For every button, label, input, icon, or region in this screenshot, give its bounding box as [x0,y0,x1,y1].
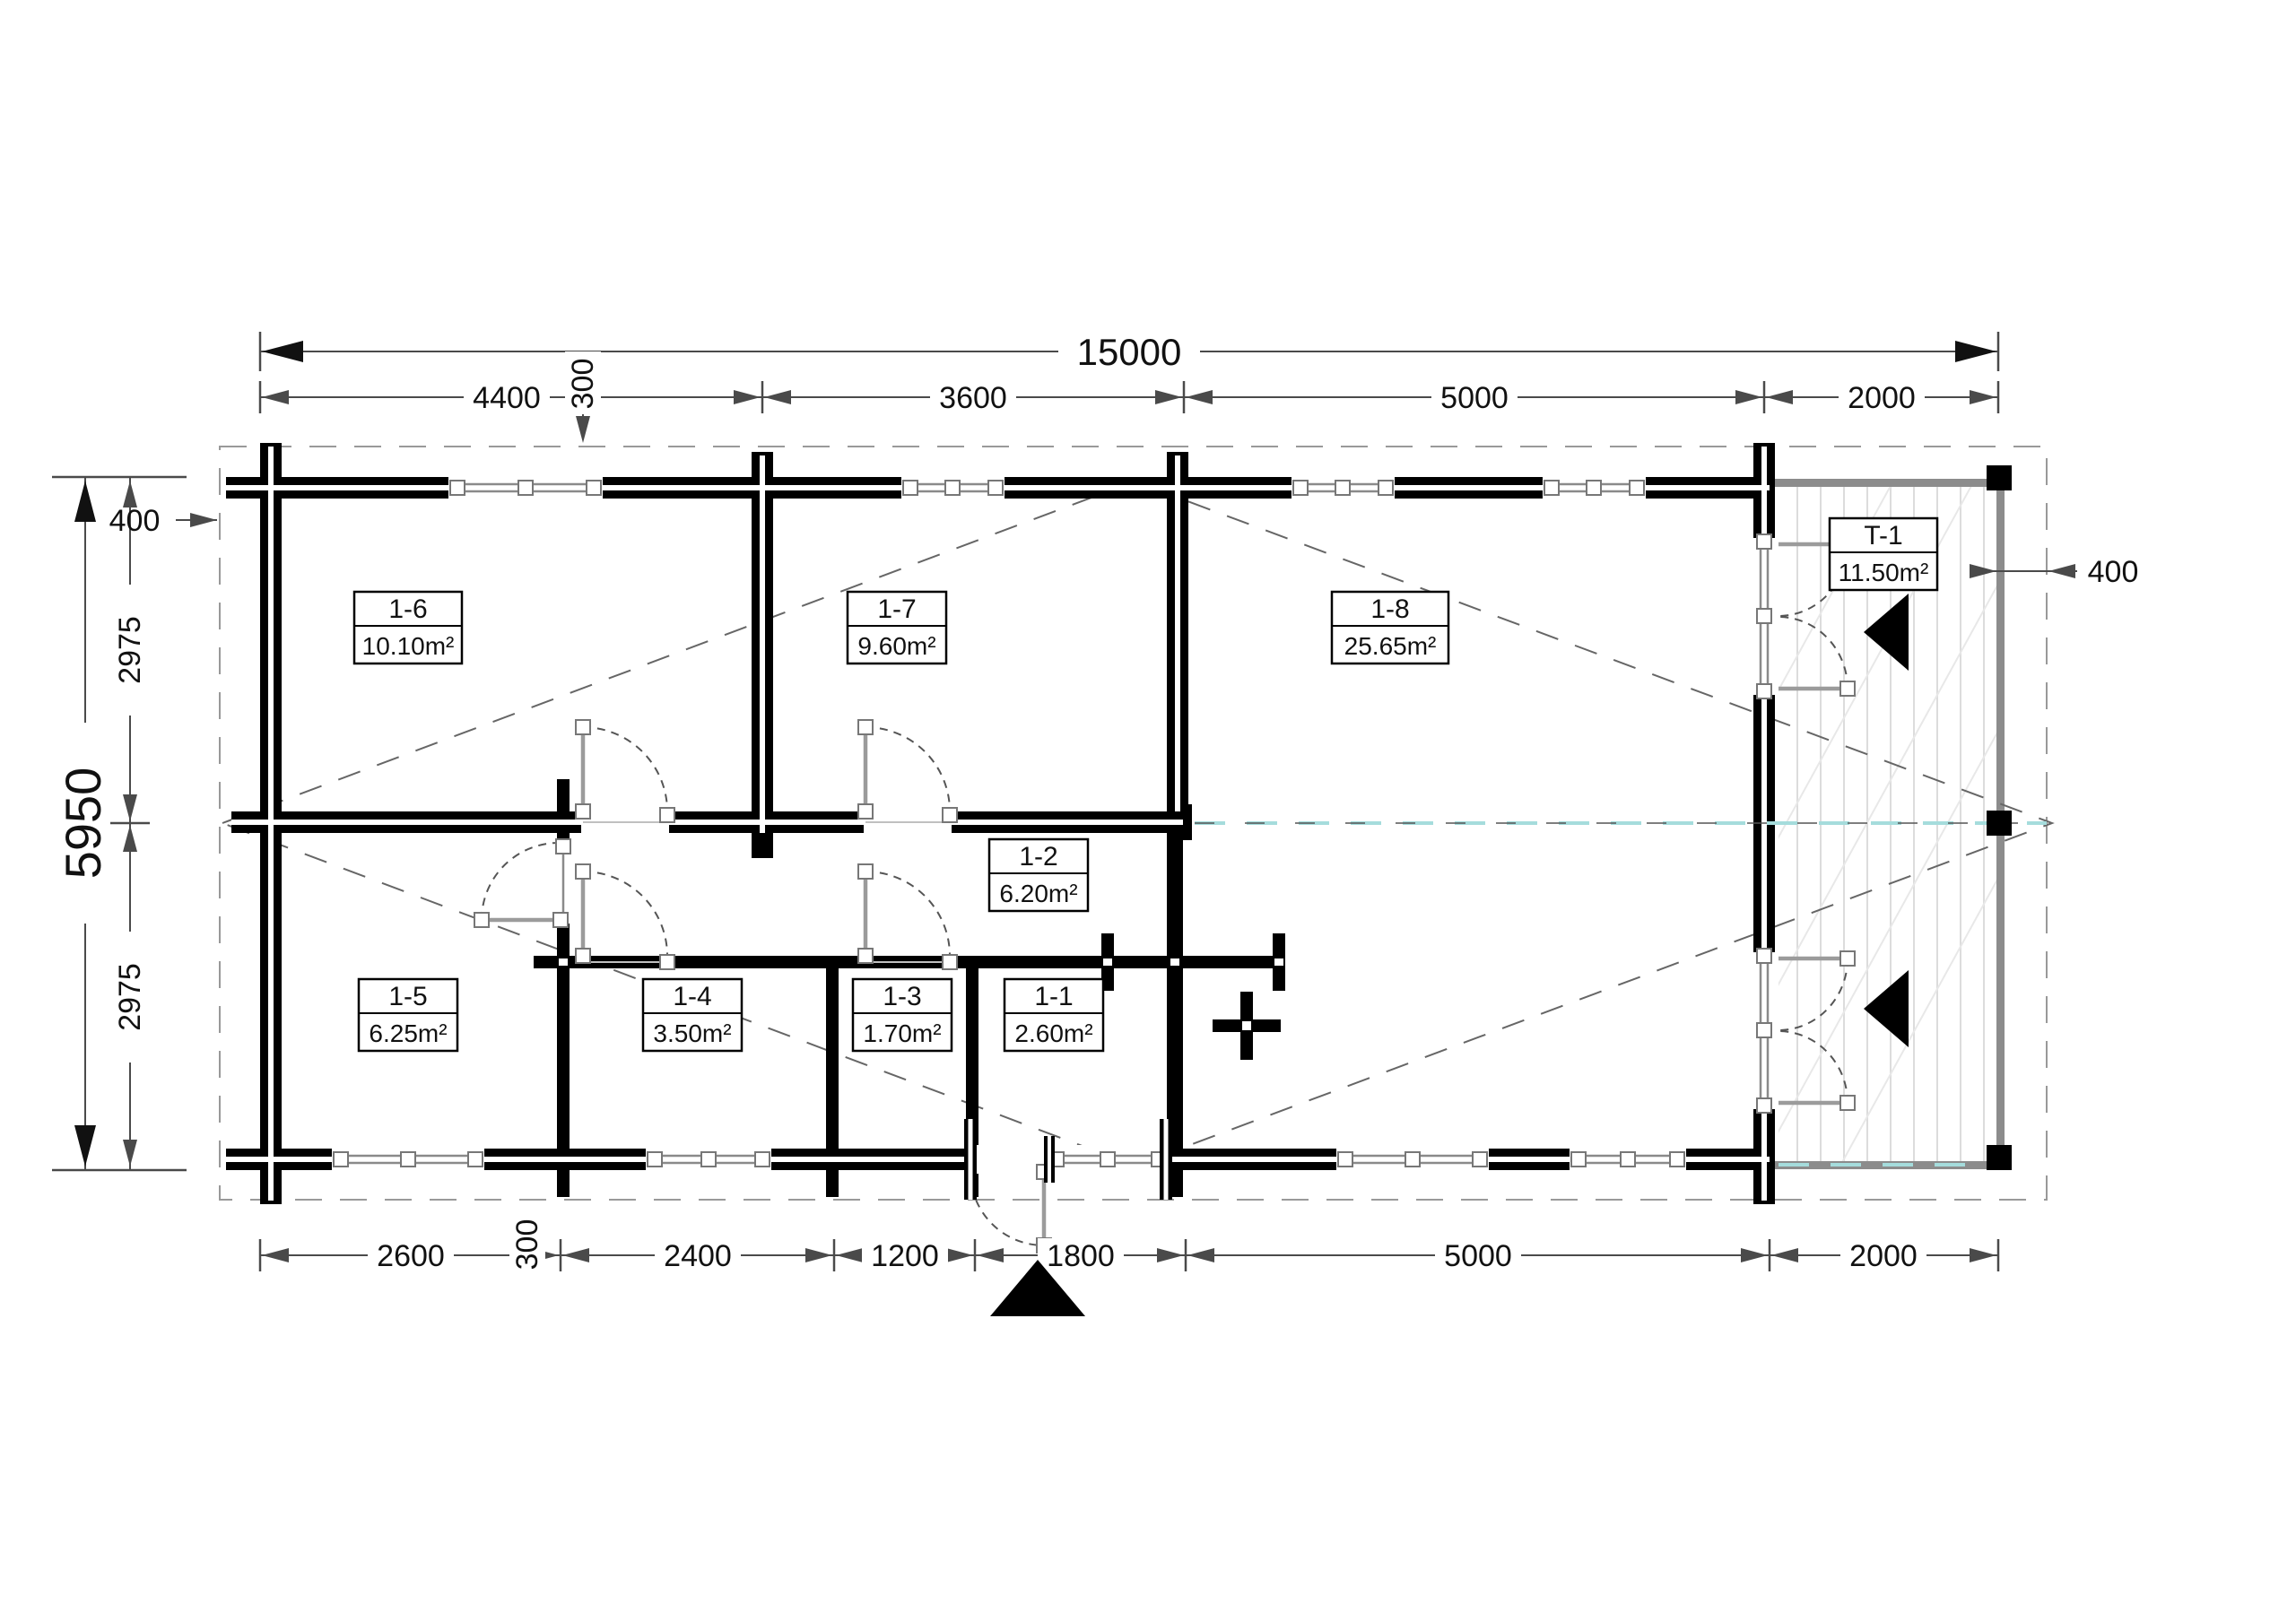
dim-top-4400: 4400 [473,381,541,415]
dim-bottom-2400: 2400 [664,1239,732,1273]
walls [226,443,1775,1204]
post [1987,1145,2012,1170]
room-labels: 1-610.10m² 1-79.60m² 1-825.65m² T-111.50… [354,518,1937,1051]
dim-top-5000: 5000 [1440,381,1509,415]
dim-bottom-300: 300 [510,1219,544,1271]
post [1987,465,2012,490]
window-icon [903,481,1003,495]
svg-text:3.50m²: 3.50m² [653,1019,731,1047]
dim-bottom-1800: 1800 [1047,1239,1115,1273]
dim-overhang-right: 400 [2088,555,2139,589]
room-label-1-8: 1-825.65m² [1332,592,1448,664]
svg-text:T-1: T-1 [1864,521,1902,551]
dimension-row-overall-width: 15000 [260,330,1998,373]
door-icon [858,720,957,822]
dim-bottom-2000: 2000 [1849,1239,1918,1273]
svg-text:1-6: 1-6 [388,594,427,624]
room-label-1-1: 1-12.60m² [1004,979,1103,1051]
dim-overall-height: 5950 [55,768,111,880]
svg-text:6.25m²: 6.25m² [369,1019,447,1047]
dim-left-2975-top: 2975 [113,616,147,684]
log-joint-icon [1160,1119,1172,1200]
window-icon [1293,481,1393,495]
room-label-1-7: 1-79.60m² [848,592,946,664]
dim-bottom-5000: 5000 [1444,1239,1512,1273]
door-icon [858,864,957,969]
post [1987,811,2012,836]
svg-text:25.65m²: 25.65m² [1344,632,1437,660]
dim-left-2975-bottom: 2975 [113,963,147,1031]
dim-bottom-1200: 1200 [871,1239,939,1273]
door-icon [576,720,674,822]
window-icon [1544,481,1644,495]
door-icon [576,864,674,969]
terrace-arrow-upper-icon [1864,594,1909,671]
svg-text:11.50m²: 11.50m² [1839,559,1929,586]
dimension-row-bottom: 2600 300 2400 1200 1800 5000 2000 [260,1212,1998,1277]
dim-top-300: 300 [566,359,600,410]
doors [474,534,1855,1253]
svg-text:1-1: 1-1 [1034,982,1073,1011]
terrace-arrow-lower-icon [1864,970,1909,1047]
dim-bottom-2600: 2600 [377,1239,445,1273]
svg-text:1-3: 1-3 [883,982,921,1011]
svg-text:9.60m²: 9.60m² [857,632,935,660]
log-joint-icon [964,1119,977,1200]
dimension-column-left: 5950 2975 2975 400 [52,477,217,1170]
svg-text:10.10m²: 10.10m² [362,632,455,660]
svg-text:2.60m²: 2.60m² [1014,1019,1092,1047]
dim-top-3600: 3600 [939,381,1007,415]
svg-text:1.70m²: 1.70m² [863,1019,941,1047]
svg-text:6.20m²: 6.20m² [999,880,1077,907]
dim-overhang-left: 400 [109,504,161,538]
room-label-1-5: 1-56.25m² [359,979,457,1051]
svg-text:1-2: 1-2 [1019,842,1057,872]
room-label-1-2: 1-26.20m² [989,839,1088,911]
terrace-edge-top [1775,479,2009,487]
room-label-t-1: T-111.50m² [1830,518,1937,590]
svg-text:1-8: 1-8 [1370,594,1409,624]
dim-overall-width: 15000 [1077,331,1182,373]
room-label-1-3: 1-31.70m² [853,979,952,1051]
svg-text:1-5: 1-5 [388,982,427,1011]
dim-top-2000: 2000 [1848,381,1916,415]
room-label-1-6: 1-610.10m² [354,592,462,664]
log-joint-icon [1044,1136,1055,1183]
room-label-1-4: 1-43.50m² [643,979,742,1051]
dimension-overhang-right: 400 [1970,555,2138,589]
svg-text:1-4: 1-4 [673,982,711,1011]
floor-plan-drawing: 1-610.10m² 1-79.60m² 1-825.65m² T-111.50… [0,0,2296,1622]
floor-plan-canvas: 1-610.10m² 1-79.60m² 1-825.65m² T-111.50… [0,0,2296,1622]
svg-text:1-7: 1-7 [877,594,916,624]
